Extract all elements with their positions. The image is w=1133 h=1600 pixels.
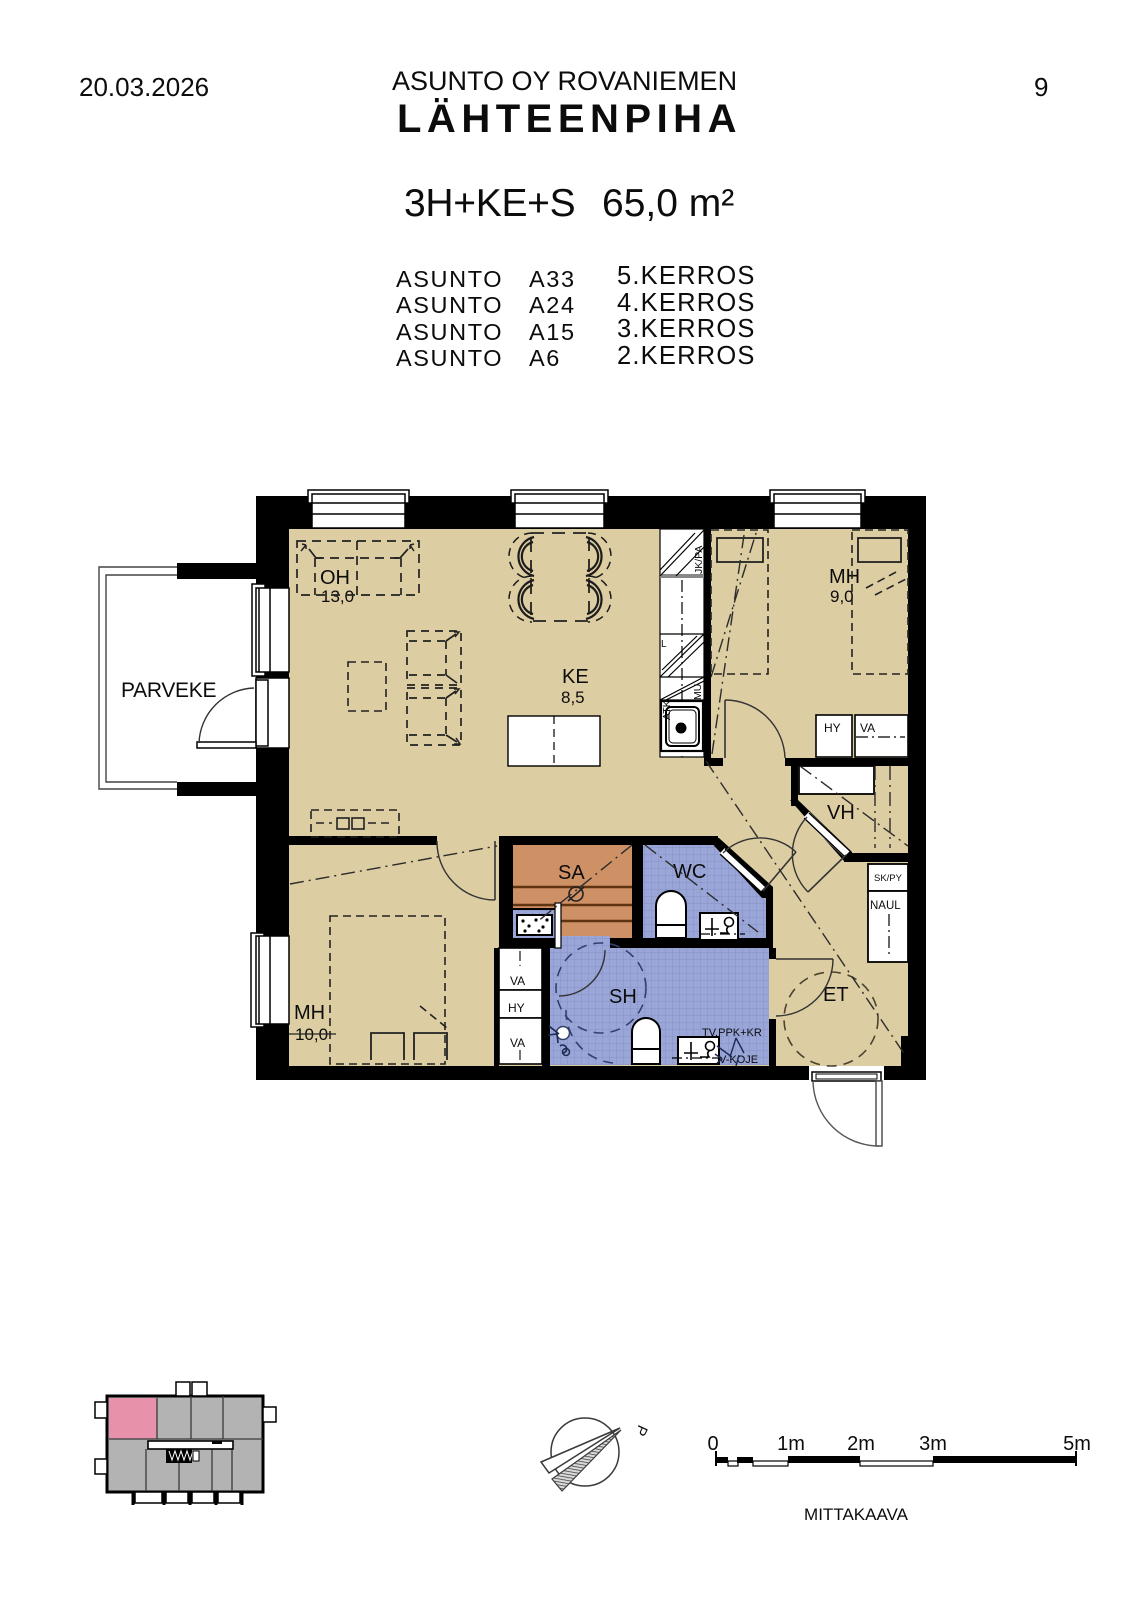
svg-text:VH: VH [827,802,855,824]
svg-text:HY: HY [508,1001,525,1015]
svg-text:20.03.2026: 20.03.2026 [79,72,209,102]
svg-text:JK/PA: JK/PA [693,546,705,574]
svg-text:0: 0 [707,1433,718,1455]
svg-text:PARVEKE: PARVEKE [121,679,216,702]
svg-text:OH: OH [320,567,350,589]
svg-text:ASUNTO: ASUNTO [396,319,503,345]
svg-text:MITTAKAAVA: MITTAKAAVA [804,1505,909,1524]
svg-text:3.KERROS: 3.KERROS [617,315,756,343]
svg-text:ASUNTO: ASUNTO [396,345,503,371]
svg-text:NAUL: NAUL [870,900,901,912]
svg-text:9,0: 9,0 [830,587,854,606]
svg-text:65,0 m²: 65,0 m² [602,182,734,225]
svg-text:2m: 2m [847,1433,875,1455]
svg-text:SK/PY: SK/PY [874,873,903,884]
svg-text:VA: VA [860,721,875,735]
svg-text:ATK: ATK [661,700,673,720]
svg-text:VA: VA [510,974,525,988]
svg-text:9: 9 [1034,72,1048,102]
svg-text:8,5: 8,5 [561,688,585,707]
svg-text:P: P [631,1422,651,1438]
svg-text:A6: A6 [529,345,561,371]
svg-text:A33: A33 [529,266,576,292]
svg-text:5.KERROS: 5.KERROS [617,262,756,290]
svg-text:2.KERROS: 2.KERROS [617,342,756,370]
svg-text:3H+KE+S: 3H+KE+S [404,182,575,225]
svg-text:SA: SA [558,862,585,884]
svg-text:ASUNTO: ASUNTO [396,266,503,292]
svg-text:HY: HY [824,721,841,735]
svg-text:5m: 5m [1063,1433,1091,1455]
svg-text:ET: ET [823,984,849,1006]
svg-text:MH: MH [294,1002,325,1024]
svg-text:4.KERROS: 4.KERROS [617,289,756,317]
svg-text:KE: KE [562,666,589,688]
svg-text:MU: MU [692,684,704,700]
svg-text:LÄHTEENPIHA: LÄHTEENPIHA [397,97,742,141]
svg-text:1m: 1m [777,1433,805,1455]
svg-text:A15: A15 [529,319,576,345]
svg-text:MH: MH [829,566,860,588]
svg-text:A24: A24 [529,292,576,318]
svg-text:13,0: 13,0 [321,587,354,606]
svg-text:L: L [661,639,667,650]
svg-text:SH: SH [609,986,637,1008]
svg-text:TV.PPK+KR: TV.PPK+KR [702,1027,762,1039]
svg-text:ASUNTO: ASUNTO [396,292,503,318]
svg-text:3m: 3m [919,1433,947,1455]
svg-text:VA: VA [510,1036,525,1050]
svg-text:ASUNTO OY ROVANIEMEN: ASUNTO OY ROVANIEMEN [392,66,737,96]
